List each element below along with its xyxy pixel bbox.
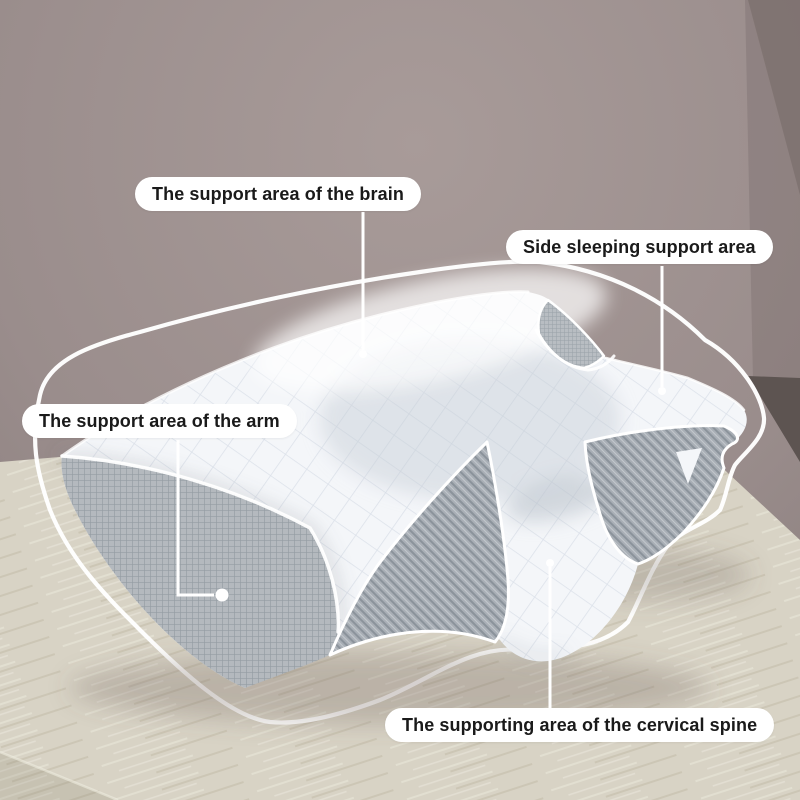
pillow-product-annotation-image: The support area of the brain Side sleep… [0, 0, 800, 800]
callout-dot-side-sleeping [658, 387, 666, 395]
label-cervical-spine-support: The supporting area of the cervical spin… [385, 708, 774, 742]
label-brain-support: The support area of the brain [135, 177, 421, 211]
callout-dot-cervical [546, 559, 554, 567]
label-arm-support: The support area of the arm [22, 404, 297, 438]
pillow-scene-illustration [0, 0, 800, 800]
label-side-sleeping-support: Side sleeping support area [506, 230, 773, 264]
callout-dot-arm [216, 589, 229, 602]
wall-right-shade [745, 0, 800, 380]
callout-dot-brain [359, 350, 367, 358]
